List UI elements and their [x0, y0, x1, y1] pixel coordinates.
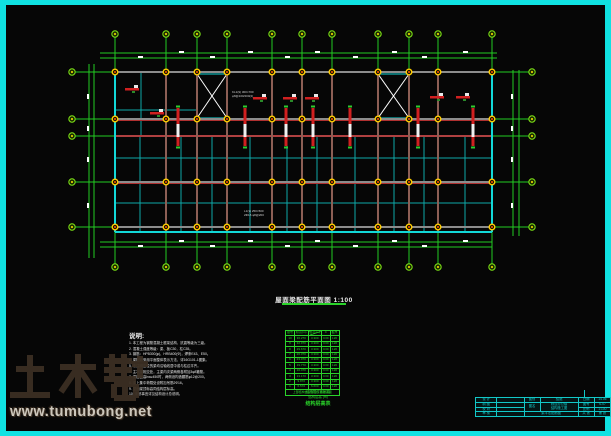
watermark-url: www.tumubong.net [10, 404, 152, 420]
beam-annotation: L1(3) 250×500 2Φ16 φ8@200 [244, 210, 264, 218]
floor-table-caption: 结构层高 (m) [288, 394, 348, 399]
floor-level-table: 层号标高(m)层高(m)C板厚1036.2703.300C30120932.97… [285, 330, 340, 396]
plan-title-underline [282, 303, 346, 305]
titleblock-tick [584, 390, 585, 397]
watermark-brand-glyphs [8, 352, 168, 402]
cad-screenshot: 屋面梁配筋平面图 1:100 KL1(9) 300×700 φ8@100/200… [0, 0, 611, 436]
notes-title: 说明: [129, 330, 281, 340]
title-block: 设 计 图别 结施 日期 14.06 制 图 图名 综合办公楼 结构施工图 图号… [475, 397, 611, 417]
floor-table-title: 结构层高表 [284, 400, 352, 407]
beam-annotation: KL1(9) 300×700 φ8@100/200(2) [232, 91, 254, 99]
watermark: www.tumubong.net [8, 352, 168, 430]
